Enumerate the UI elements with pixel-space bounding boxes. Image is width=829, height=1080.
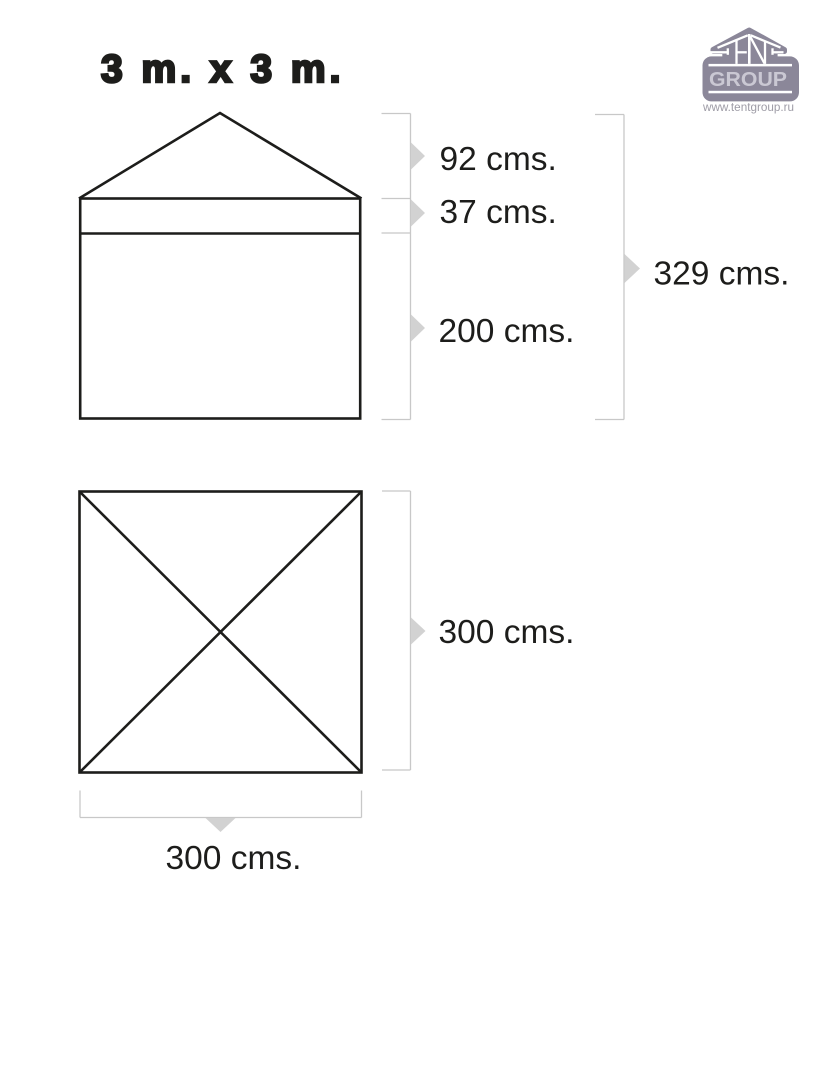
svg-text:GROUP: GROUP xyxy=(709,69,787,91)
svg-text:92 cms.: 92 cms. xyxy=(440,141,557,178)
svg-text:200 cms.: 200 cms. xyxy=(439,313,575,350)
svg-text:3 m. x 3 m.: 3 m. x 3 m. xyxy=(101,48,344,91)
svg-text:329 cms.: 329 cms. xyxy=(654,256,790,293)
svg-text:300 cms.: 300 cms. xyxy=(439,614,575,651)
svg-text:300 cms.: 300 cms. xyxy=(166,840,302,877)
svg-text:37 cms.: 37 cms. xyxy=(440,194,557,231)
svg-text:www.tentgroup.ru: www.tentgroup.ru xyxy=(702,100,794,114)
